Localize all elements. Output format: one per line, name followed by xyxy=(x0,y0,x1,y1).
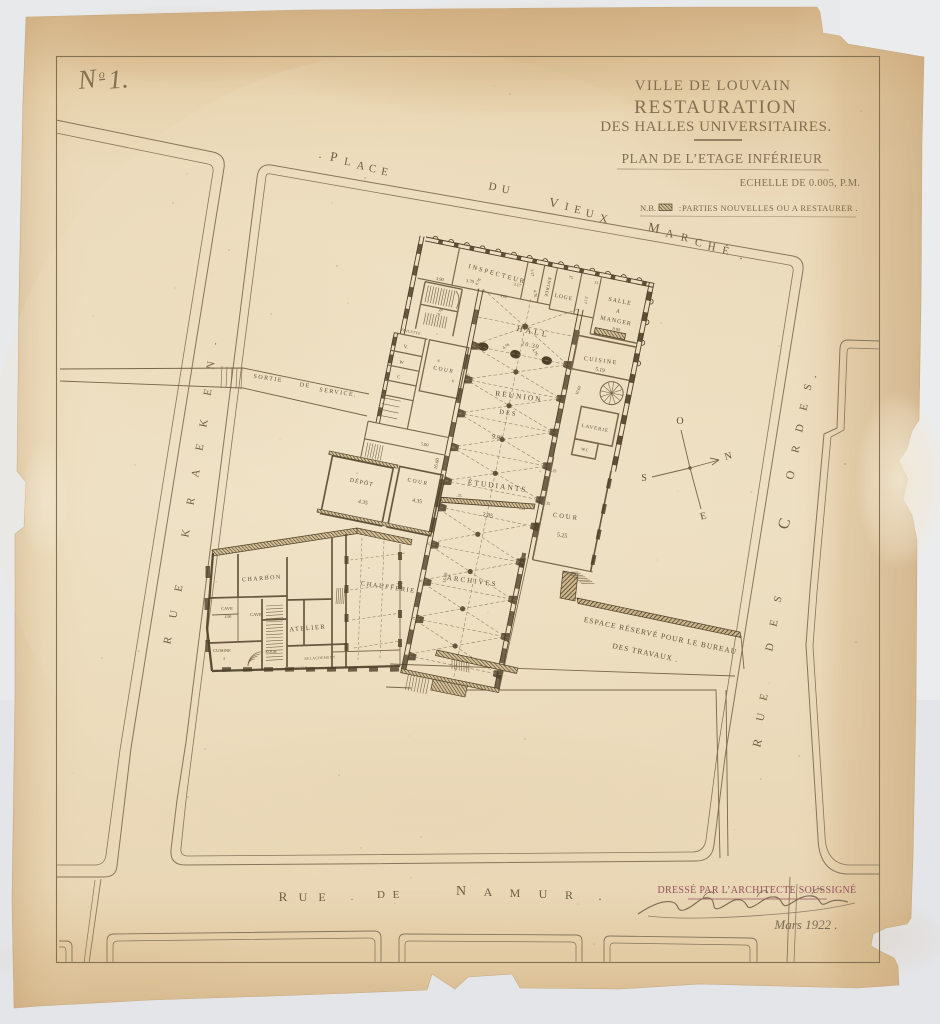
svg-text:CUISINE: CUISINE xyxy=(213,648,231,653)
svg-text:.: . xyxy=(598,888,601,903)
svg-text:D: D xyxy=(377,889,385,901)
svg-text:DES HALLES UNIVERSITAIRES.: DES HALLES UNIVERSITAIRES. xyxy=(600,119,831,135)
svg-text:U: U xyxy=(299,890,308,904)
svg-text:E: E xyxy=(318,890,325,904)
svg-text:S: S xyxy=(641,473,647,484)
svg-text:M: M xyxy=(510,886,521,900)
svg-text:1.: 1. xyxy=(107,63,129,94)
svg-text:4.76: 4.76 xyxy=(533,290,538,298)
svg-text:VILLE DE LOUVAIN: VILLE DE LOUVAIN xyxy=(635,78,791,94)
svg-text:Mars 1922 .: Mars 1922 . xyxy=(773,917,837,932)
svg-text:4.90: 4.90 xyxy=(225,615,232,619)
svg-text:U: U xyxy=(539,887,548,901)
svg-text:PLAN DE L’ETAGE INFÉRIEUR: PLAN DE L’ETAGE INFÉRIEUR xyxy=(621,151,822,166)
svg-text:BOUTIN: BOUTIN xyxy=(292,666,308,671)
svg-text:DRESSÉ PAR L’ARCHITECTE SOUSSI: DRESSÉ PAR L’ARCHITECTE SOUSSIGNÉ xyxy=(658,884,857,896)
svg-text:3.17: 3.17 xyxy=(530,269,535,277)
svg-text:.35: .35 xyxy=(456,492,462,498)
svg-text:CAVE: CAVE xyxy=(250,612,262,617)
svg-text:R: R xyxy=(279,889,288,904)
svg-text:N.B.: N.B. xyxy=(640,203,656,213)
svg-text:ECHELLE DE 0.005, P.M.: ECHELLE DE 0.005, P.M. xyxy=(740,178,861,189)
svg-text::: : xyxy=(679,203,681,213)
svg-text:RESTAURATION: RESTAURATION xyxy=(634,97,798,118)
svg-text:R: R xyxy=(565,888,573,902)
svg-text:.35: .35 xyxy=(551,468,557,474)
svg-text:.35: .35 xyxy=(544,500,550,506)
svg-text:PARTIES NOUVELLES OU A RES: PARTIES NOUVELLES OU A RESTAURER . xyxy=(682,203,858,213)
svg-text:3: 3 xyxy=(223,657,225,661)
svg-text:A: A xyxy=(484,885,493,899)
svg-text:.: . xyxy=(351,892,353,902)
svg-text:.: . xyxy=(319,147,322,161)
svg-text:CAVE: CAVE xyxy=(221,606,233,611)
svg-text:O: O xyxy=(676,416,683,427)
svg-text:E: E xyxy=(393,889,400,901)
svg-text:N: N xyxy=(456,884,466,899)
